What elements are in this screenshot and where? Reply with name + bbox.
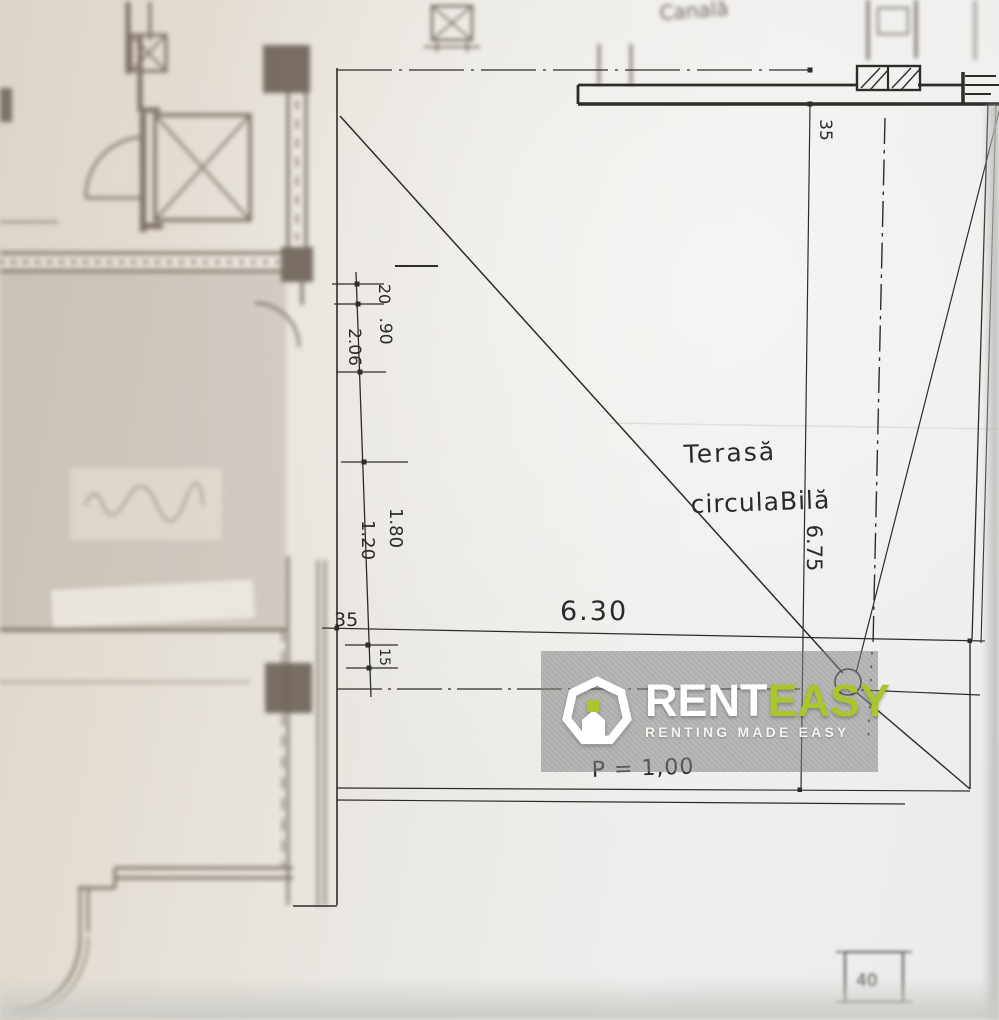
dim-seg-90: .90 bbox=[375, 317, 395, 344]
photo-right-edge-blur bbox=[982, 105, 999, 1020]
dimension-labels: 20 .90 2.06 1.80 1.20 35 15 6.30 6.75 35 bbox=[334, 119, 835, 666]
eraser-smudge bbox=[70, 468, 222, 540]
door-arc bbox=[86, 137, 143, 198]
watermark-text: RENTEASY RENTING MADE EASY bbox=[645, 681, 890, 740]
pier bbox=[281, 247, 313, 282]
dim-seg-20: 20 bbox=[375, 284, 394, 304]
brand-easy: EASY bbox=[768, 675, 891, 726]
top-beam bbox=[578, 66, 999, 107]
dim-total-height: 6.75 bbox=[802, 525, 826, 572]
background-floorplan-blurred bbox=[0, 2, 325, 1016]
wall bbox=[140, 34, 160, 112]
wall bbox=[318, 560, 325, 906]
dim-left-offset: 35 bbox=[334, 609, 358, 631]
dim-seg-206: 2.06 bbox=[344, 328, 364, 366]
room-label-line1: Terasă bbox=[682, 437, 776, 469]
slope-diagonal-left bbox=[340, 116, 843, 673]
slope-diagonal-right bbox=[856, 100, 999, 673]
watermark-banner: RENTEASY RENTING MADE EASY bbox=[541, 651, 878, 772]
brand-name: RENTEASY bbox=[645, 681, 890, 721]
wall-stub bbox=[0, 88, 12, 122]
wall bbox=[78, 868, 293, 888]
pier bbox=[263, 45, 310, 93]
photo-bottom-edge-blur bbox=[0, 978, 999, 1020]
plan-drawing: Canală 40 bbox=[0, 0, 999, 1020]
dim-seg-15: 15 bbox=[376, 648, 392, 666]
edge-hatch-marks bbox=[965, 76, 999, 94]
dim-total-width: 6.30 bbox=[560, 596, 628, 627]
house-glyph bbox=[582, 710, 605, 743]
green-dot bbox=[587, 700, 599, 712]
duct-note: Canală bbox=[659, 0, 729, 25]
heptagon-house-icon bbox=[567, 681, 627, 743]
dimension-line-width bbox=[322, 628, 985, 641]
pier bbox=[265, 663, 312, 713]
brand-tagline: RENTING MADE EASY bbox=[645, 724, 890, 740]
brand-rent: RENT bbox=[645, 675, 768, 726]
paper-fold-line bbox=[610, 423, 999, 429]
terrace-bottom-edge-lines bbox=[337, 788, 970, 804]
riser-lines bbox=[599, 44, 631, 85]
dim-top-offset: 35 bbox=[815, 119, 835, 141]
top-blurred-strip: Canală bbox=[424, 0, 975, 85]
room-label-line2: circulaBilă bbox=[690, 485, 831, 519]
renteasy-logo bbox=[553, 668, 641, 756]
dim-seg-120: 1.20 bbox=[357, 520, 378, 560]
terrace-drawing: 20 .90 2.06 1.80 1.20 35 15 6.30 6.75 35… bbox=[293, 66, 999, 906]
dim-seg-180: 1.80 bbox=[385, 508, 406, 548]
blueprint-photo: Canală 40 bbox=[0, 0, 999, 1020]
